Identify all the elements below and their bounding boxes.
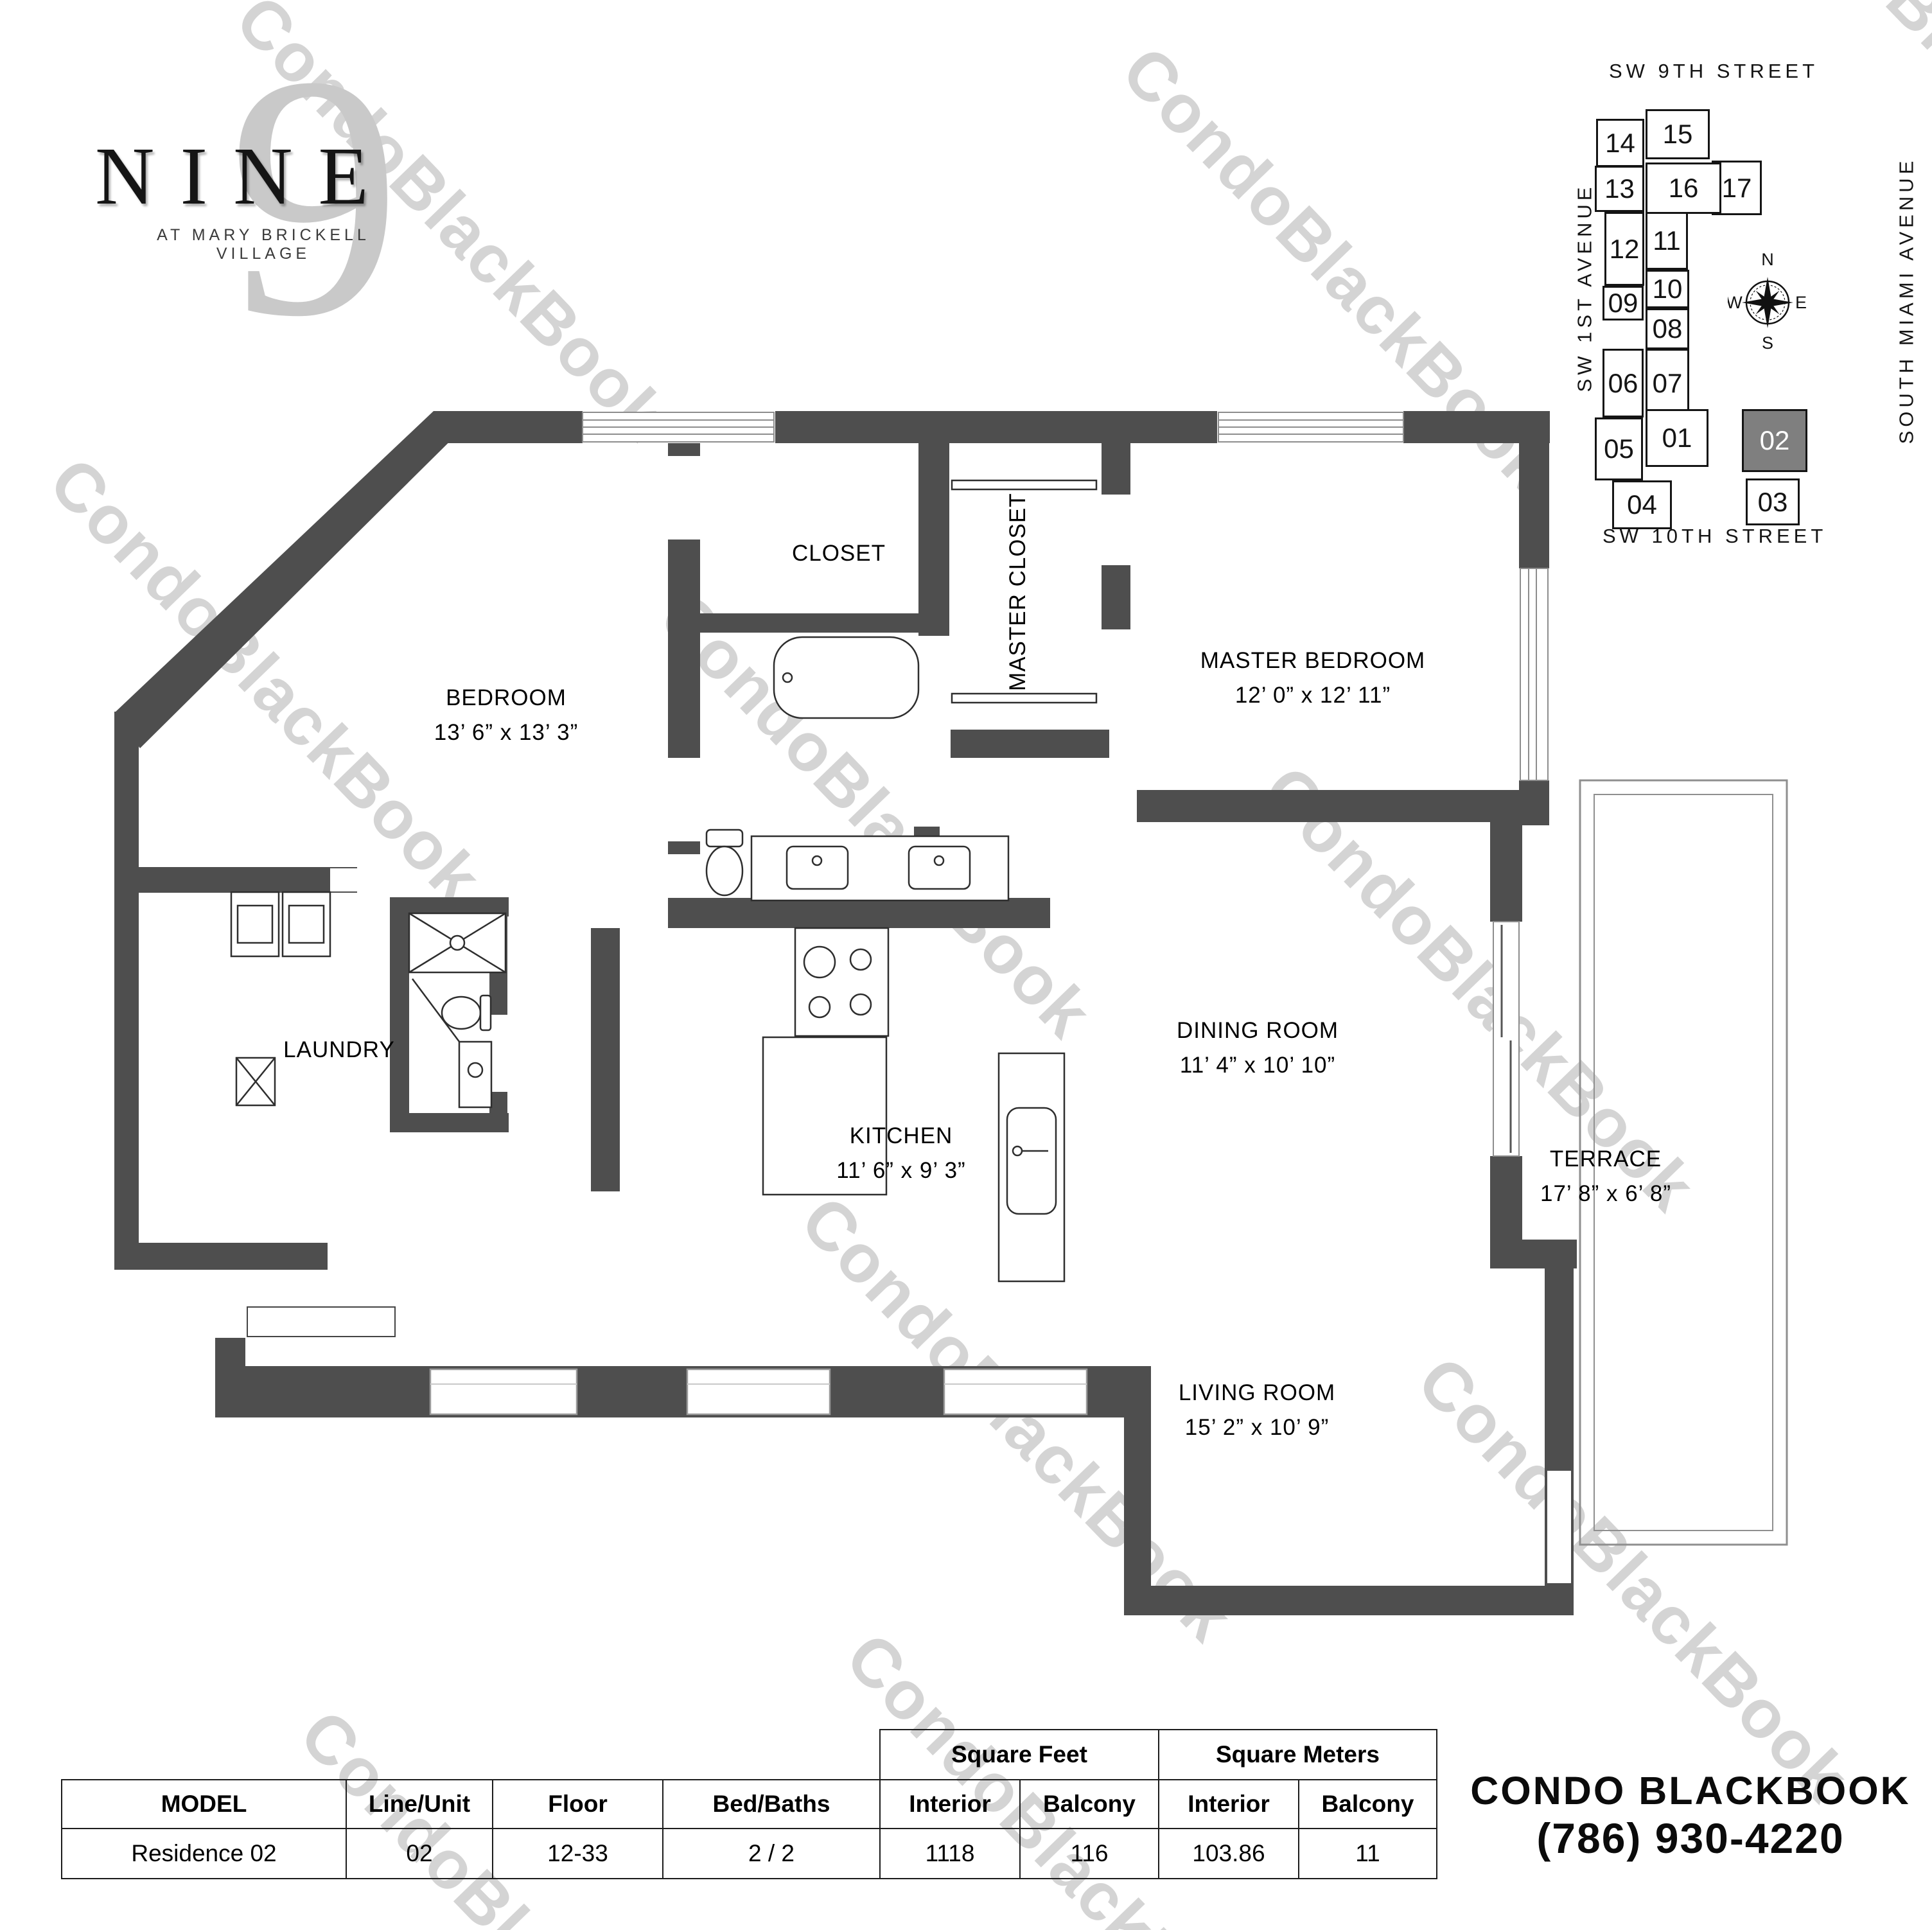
compass-n: N — [1761, 250, 1774, 269]
room-name: LAUNDRY — [243, 1033, 435, 1067]
room-dims: 15’ 2” x 10’ 9” — [1141, 1410, 1373, 1445]
room-label-living-room: LIVING ROOM 15’ 2” x 10’ 9” — [1141, 1376, 1373, 1445]
toilet — [442, 997, 480, 1029]
room-label-closet: CLOSET — [742, 536, 935, 571]
contact-phone: (786) 930-4220 — [1449, 1814, 1932, 1863]
compass-w: W — [1728, 293, 1743, 312]
room-name: DINING ROOM — [1142, 1013, 1373, 1048]
compass-s: S — [1762, 333, 1773, 351]
kitchen-sink — [1007, 1108, 1056, 1214]
col-header-model: MODEL — [62, 1780, 346, 1829]
keyplan-unit-12: 12 — [1604, 212, 1644, 286]
cooktop — [795, 928, 888, 1036]
room-label-master-bedroom: MASTER BEDROOM 12’ 0” x 12’ 11” — [1184, 644, 1441, 713]
keyplan-unit-07: 07 — [1646, 349, 1689, 417]
floorplan-page: CondoBlackBook CondoBlackBook CondoBlack… — [0, 0, 1932, 1930]
bathtub — [774, 637, 918, 718]
room-name: MASTER BEDROOM — [1184, 644, 1441, 678]
street-label-southmiami: SOUTH MIAMI AVENUE — [1895, 157, 1918, 444]
cell-line-unit: 02 — [346, 1829, 493, 1879]
keyplan-unit-11: 11 — [1646, 212, 1688, 270]
cell-bed-baths: 2 / 2 — [663, 1829, 880, 1879]
group-header-square-feet: Square Feet — [880, 1730, 1159, 1780]
room-name: MASTER CLOSET — [1001, 498, 1035, 691]
spec-table: Square Feet Square Meters MODEL Line/Uni… — [61, 1729, 1437, 1879]
room-label-laundry: LAUNDRY — [243, 1033, 435, 1067]
room-dims: 13’ 6” x 13’ 3” — [410, 715, 602, 750]
keyplan-unit-13: 13 — [1595, 166, 1644, 212]
contact-brand: CONDO BLACKBOOK — [1449, 1768, 1932, 1814]
room-name: BEDROOM — [410, 681, 602, 715]
closet-shelf — [952, 480, 1096, 489]
col-header-balcony-sf: Balcony — [1020, 1780, 1159, 1829]
keyplan-unit-10: 10 — [1646, 270, 1689, 308]
room-label-dining-room: DINING ROOM 11’ 4” x 10’ 10” — [1142, 1013, 1373, 1083]
room-label-kitchen: KITCHEN 11’ 6” x 9’ 3” — [789, 1119, 1014, 1188]
table-row: Residence 02 02 12-33 2 / 2 1118 116 103… — [62, 1829, 1437, 1879]
col-header-balcony-sm: Balcony — [1299, 1780, 1437, 1829]
room-dims: 11’ 6” x 9’ 3” — [789, 1154, 1014, 1188]
col-header-interior-sf: Interior — [880, 1780, 1020, 1829]
cell-floor: 12-33 — [493, 1829, 663, 1879]
toilet — [707, 830, 742, 847]
room-dims: 17’ 8” x 6’ 8” — [1509, 1177, 1702, 1211]
room-name: TERRACE — [1509, 1142, 1702, 1177]
room-label-master-closet: MASTER CLOSET — [1001, 498, 1026, 691]
logo-tagline: AT MARY BRICKELL VILLAGE — [145, 226, 382, 263]
keyplan-unit-08: 08 — [1646, 308, 1689, 349]
cell-balcony-sm: 11 — [1299, 1829, 1437, 1879]
col-header-bed-baths: Bed/Baths — [663, 1780, 880, 1829]
keyplan-unit-06: 06 — [1603, 349, 1644, 417]
col-header-line-unit: Line/Unit — [346, 1780, 493, 1829]
room-dims: 11’ 4” x 10’ 10” — [1142, 1048, 1373, 1083]
room-name: CLOSET — [742, 536, 935, 571]
contact-block: CONDO BLACKBOOK (786) 930-4220 — [1449, 1768, 1932, 1863]
cell-interior-sm: 103.86 — [1159, 1829, 1299, 1879]
table-spacer — [62, 1730, 880, 1780]
closet-shelf — [952, 694, 1096, 703]
street-label-sw1stave: SW 1ST AVENUE — [1573, 184, 1596, 392]
cell-balcony-sf: 116 — [1020, 1829, 1159, 1879]
keyplan-unit-15: 15 — [1646, 109, 1710, 159]
keyplan-unit-09: 09 — [1603, 286, 1644, 320]
room-dims: 12’ 0” x 12’ 11” — [1184, 678, 1441, 713]
group-header-square-meters: Square Meters — [1159, 1730, 1437, 1780]
room-name: KITCHEN — [789, 1119, 1014, 1154]
logo: 9 NINE AT MARY BRICKELL VILLAGE — [90, 90, 437, 308]
keyplan-unit-16: 16 — [1646, 162, 1721, 214]
cell-model: Residence 02 — [62, 1829, 346, 1879]
floorplan: BEDROOM 13’ 6” x 13’ 3” CLOSET MASTER CL… — [109, 411, 1805, 1651]
col-header-interior-sm: Interior — [1159, 1780, 1299, 1829]
keyplan-unit-14: 14 — [1596, 119, 1644, 167]
logo-name: NINE — [95, 131, 394, 222]
room-label-terrace: TERRACE 17’ 8” x 6’ 8” — [1509, 1142, 1702, 1211]
col-header-floor: Floor — [493, 1780, 663, 1829]
floorplan-drawing — [109, 411, 1805, 1651]
street-label-sw9th: SW 9TH STREET — [1609, 60, 1818, 83]
compass-e: E — [1795, 293, 1807, 312]
room-label-bedroom: BEDROOM 13’ 6” x 13’ 3” — [410, 681, 602, 750]
room-name: LIVING ROOM — [1141, 1376, 1373, 1410]
cell-interior-sf: 1118 — [880, 1829, 1020, 1879]
compass-rose-icon: N W E S — [1728, 246, 1807, 351]
